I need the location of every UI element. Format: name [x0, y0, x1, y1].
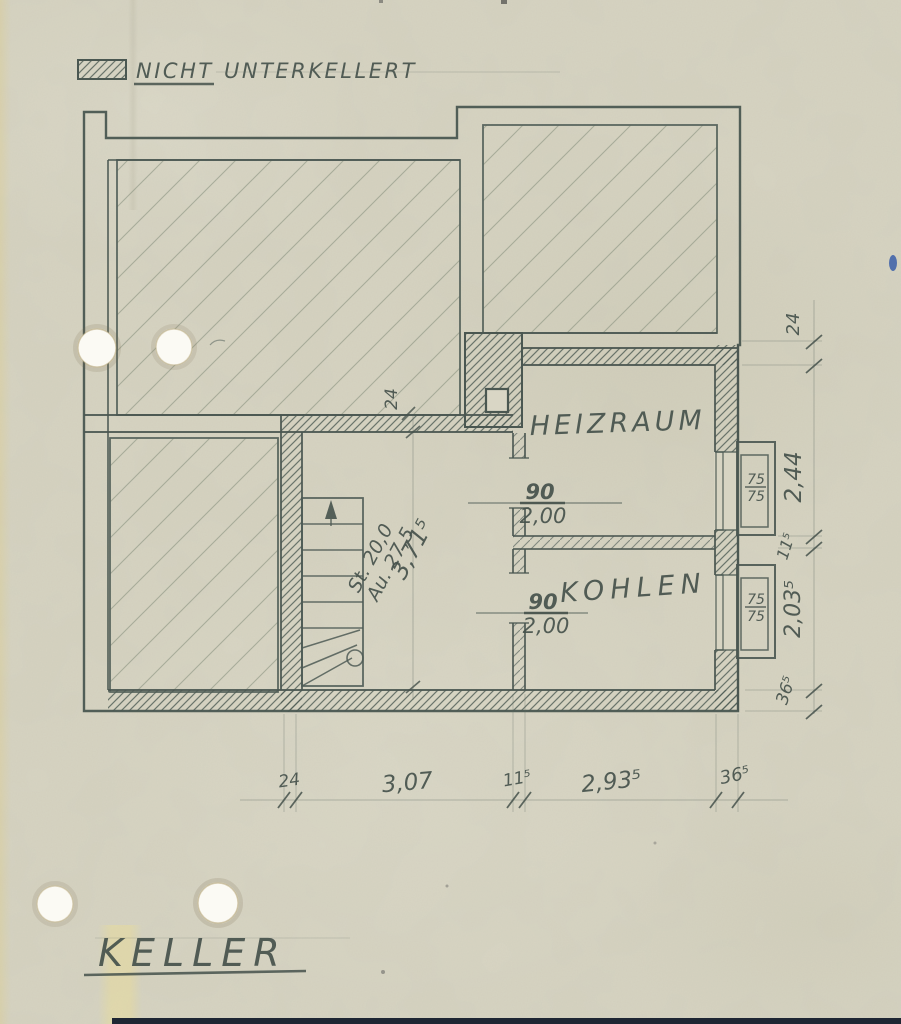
punch-hole [37, 886, 73, 922]
speck [381, 970, 385, 974]
room-lower-left-unexcavated [110, 438, 278, 692]
title-keller: KELLER [98, 931, 288, 975]
speck [501, 0, 507, 4]
partition-seg [513, 549, 525, 573]
punch-hole [156, 329, 192, 365]
punch-hole [198, 883, 238, 923]
speck [446, 885, 449, 888]
chimney-flue [486, 389, 508, 412]
dim-bottom-307: 3,07 [381, 768, 435, 798]
door-height: 2,00 [520, 504, 567, 528]
blue-ink-mark [889, 255, 897, 271]
drawing-canvas: NICHT UNTERKELLERT [0, 0, 901, 1024]
door-width: 90 [525, 480, 554, 504]
legend-hatch-swatch [78, 60, 126, 79]
dim-stair-top-wall: 24 [382, 388, 402, 410]
window-size-bottom: 75 [747, 489, 765, 505]
door-width: 90 [528, 590, 557, 614]
room-label-heizraum: HEIZRAUM [529, 405, 706, 442]
partition-seg [513, 433, 525, 458]
dim-right-2035: 2,03⁵ [781, 580, 806, 638]
window-size-bottom: 75 [747, 609, 765, 625]
room-top-left-unexcavated [117, 160, 460, 415]
window-size-top: 75 [747, 472, 765, 488]
dim-right-244: 2,44 [781, 451, 807, 502]
stair-hall-left-wall [281, 432, 302, 712]
room-top-right-unexcavated [483, 125, 717, 333]
dim-bottom-24: 24 [277, 770, 301, 793]
window-size-top: 75 [747, 592, 765, 608]
legend-label-nicht: NICHT [136, 59, 214, 83]
dim-right-24: 24 [783, 313, 804, 336]
speck [654, 842, 657, 845]
keller-floor-plan-scan: NICHT UNTERKELLERT [0, 0, 901, 1024]
heizraum-top-wall [522, 348, 738, 365]
speck [379, 0, 383, 3]
scan-bottom-edge [112, 1018, 901, 1024]
bottom-outer-wall [108, 690, 738, 711]
punch-hole [78, 329, 116, 367]
door-height: 2,00 [523, 614, 570, 638]
heizraum-kohlen-partition [513, 536, 715, 549]
legend-label-unterkellert: UNTERKELLERT [224, 59, 417, 83]
